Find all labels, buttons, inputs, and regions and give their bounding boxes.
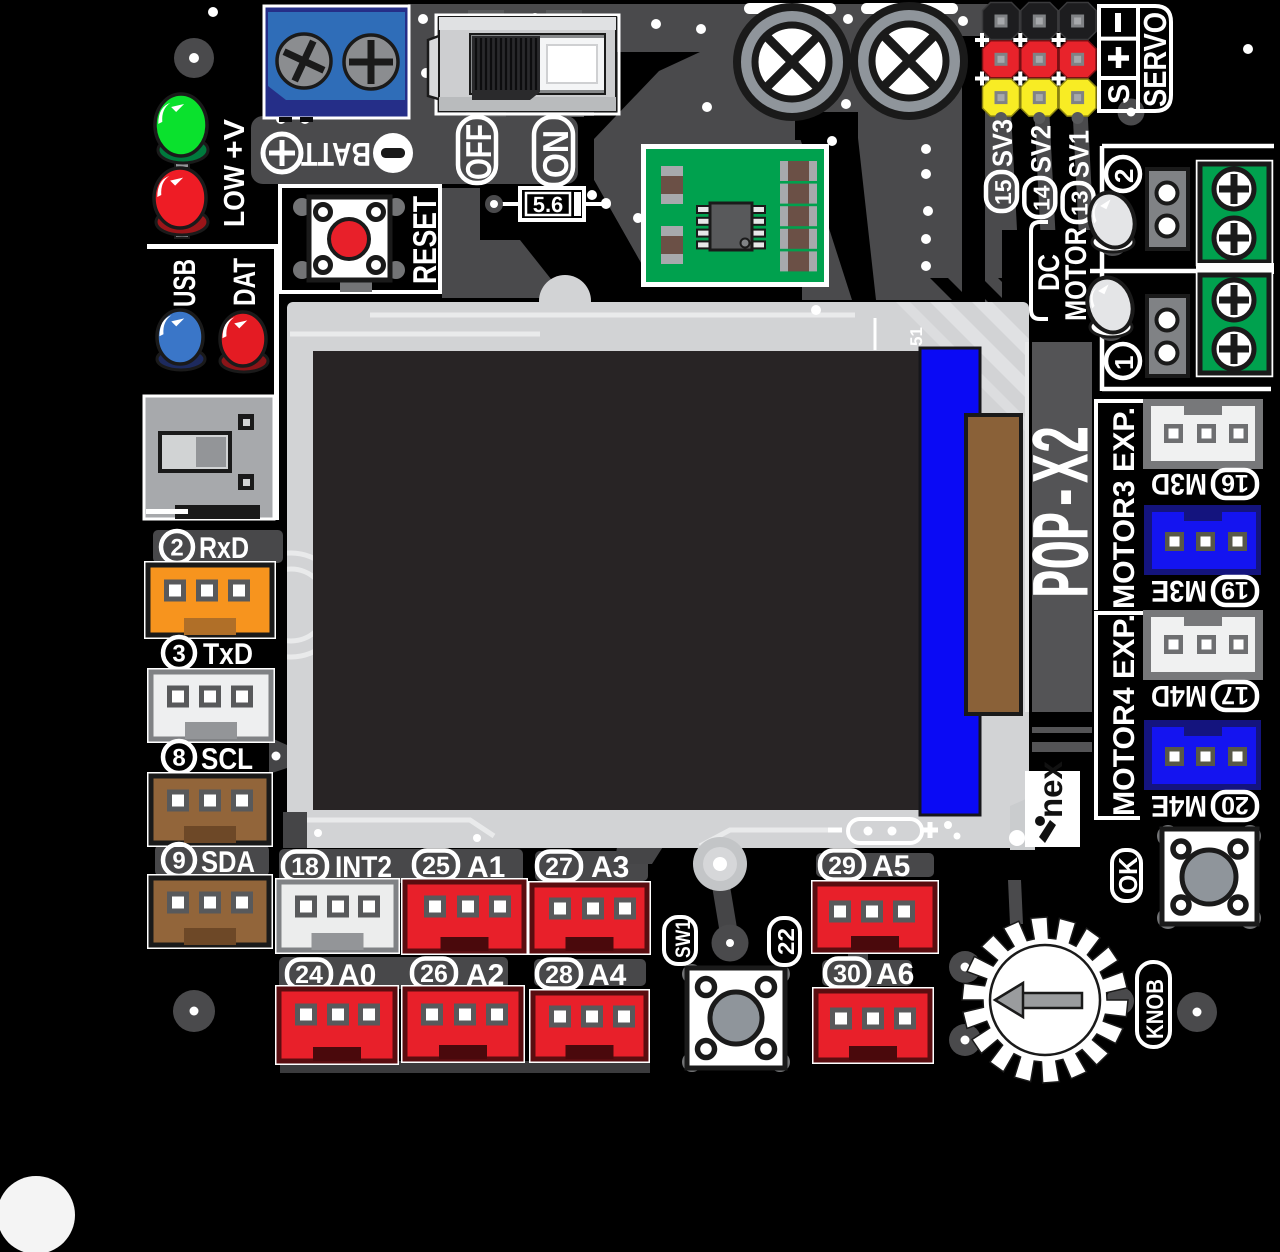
svg-text:14: 14 [1028,185,1054,211]
svg-text:15: 15 [990,179,1016,205]
svg-text:SCL: SCL [201,743,253,776]
svg-text:SW1: SW1 [672,920,695,958]
svg-text:SV3: SV3 [987,119,1018,167]
svg-text:28: 28 [545,961,573,989]
svg-text:OFF: OFF [458,124,499,180]
svg-text:1: 1 [1109,356,1139,370]
svg-text:SV2: SV2 [1025,125,1056,173]
svg-text:16: 16 [1221,469,1249,497]
svg-text:USB: USB [167,259,202,307]
svg-text:MOTOR4 EXP.: MOTOR4 EXP. [1108,614,1141,816]
svg-text:5.6: 5.6 [533,192,564,217]
svg-text:17: 17 [1221,681,1249,709]
svg-text:M3D: M3D [1151,467,1207,500]
svg-text:A6: A6 [876,958,914,991]
svg-text:2: 2 [170,535,183,562]
svg-text:SV1: SV1 [1064,130,1095,178]
svg-text:nex: nex [1032,760,1069,818]
svg-text:A4: A4 [588,959,627,992]
svg-text:M3E: M3E [1151,574,1207,607]
svg-text:DAT: DAT [227,258,262,306]
svg-text:8: 8 [172,745,185,772]
svg-text:ON: ON [535,130,576,178]
svg-text:S: S [1103,84,1136,104]
svg-text:M4E: M4E [1151,789,1207,822]
svg-text:26: 26 [420,960,448,988]
svg-text:20: 20 [1221,791,1249,819]
svg-text:3: 3 [172,641,185,668]
svg-text:19: 19 [1221,576,1249,604]
svg-text:POP-X2: POP-X2 [1020,425,1113,598]
svg-text:24: 24 [295,961,323,989]
svg-text:LOW: LOW [219,164,251,227]
svg-text:OK: OK [1113,857,1143,894]
svg-text:29: 29 [828,852,856,880]
svg-text:KNOB: KNOB [1142,979,1169,1039]
svg-text:BATT: BATT [301,136,371,173]
svg-text:27: 27 [545,853,573,881]
svg-text:30: 30 [833,960,861,988]
svg-text:51: 51 [907,327,926,346]
svg-text:RESET: RESET [406,196,443,284]
svg-text:9: 9 [172,848,185,875]
svg-text:RxD: RxD [199,532,249,565]
svg-text:22: 22 [773,928,799,955]
svg-text:SERVO: SERVO [1137,12,1173,107]
svg-text:A5: A5 [872,850,910,883]
svg-text:18: 18 [291,853,319,881]
svg-text:M4D: M4D [1151,679,1207,712]
svg-text:25: 25 [422,852,450,880]
svg-text:2: 2 [1109,169,1139,183]
svg-text:A3: A3 [591,851,629,884]
svg-text:+V: +V [219,118,251,159]
svg-text:TxD: TxD [203,638,253,671]
